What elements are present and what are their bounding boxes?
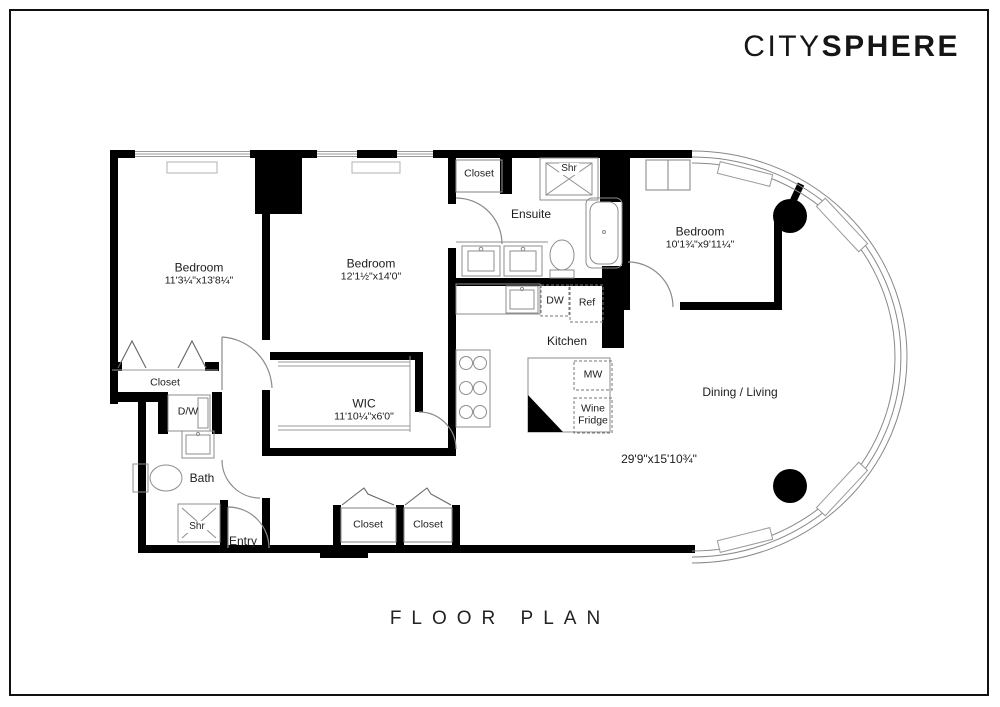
wine-fridge-label: Wine Fridge [573,403,613,427]
washer-dryer-label: D/W [178,406,198,419]
floor-plan-page: CITYSPHERE Bedroom 11'3¼"x13'8¼" Bedroom… [0,0,1000,707]
dishwasher-label: DW [546,295,564,308]
room-name: Bedroom [666,225,735,239]
room-name: Bedroom [165,261,234,275]
bedroom2-label: Bedroom 12'1½"x14'0" [341,257,402,284]
room-name: WIC [334,397,394,411]
shower-label: Shr [559,163,579,175]
plan-title: FLOOR PLAN [390,608,610,630]
range-icon [456,350,490,427]
closet-label: Closet [150,377,180,390]
brand-logo: CITYSPHERE [743,30,960,64]
bath-fixtures [133,395,220,542]
floor-plan-drawing [0,0,1000,707]
bathtub-icon [586,198,622,268]
bath-door-arc [222,460,260,498]
room-dims: 11'10¼"x6'0" [334,411,394,424]
bedroom3-door-arc [628,262,673,307]
bedroom1-label: Bedroom 11'3¼"x13'8¼" [165,261,234,288]
sink-icon [182,431,214,458]
kitchen-sink-icon [506,286,538,313]
entry-label: Entry [229,534,257,548]
sink-icon [504,246,542,276]
bifold-door-icon [342,488,394,505]
dining-living-dims: 29'9"x15'10¾" [621,452,697,466]
bifold-door-icon [405,488,451,505]
room-name: Bedroom [341,257,402,271]
wic-label: WIC 11'10¼"x6'0" [334,397,394,424]
room-dims: 11'3¼"x13'8¼" [165,275,234,288]
closet-label: Closet [353,519,383,532]
closet-label: Closet [413,519,443,532]
brand-light: CITY [743,30,821,63]
kitchen-label: Kitchen [547,334,587,348]
ensuite-label: Ensuite [511,207,551,221]
walls [110,150,782,558]
sink-icon [462,246,500,276]
toilet-icon [550,240,574,278]
door-swings [222,198,673,548]
room-dims: 10'1¾"x9'11¼" [666,239,735,252]
microwave-label: MW [584,369,603,382]
island-corner [528,395,563,432]
bifold-door-icon [178,341,206,368]
brand-bold: SPHERE [822,30,960,63]
ensuite-door-arc [456,198,502,244]
column-icon [773,469,807,503]
shower-label: Shr [187,521,207,533]
bath-label: Bath [190,471,215,485]
bifold-door-icon [118,341,146,368]
bedroom3-label: Bedroom 10'1¾"x9'11¼" [666,225,735,252]
bedroom1-door-arc [222,337,272,388]
refrigerator-label: Ref [579,297,595,310]
room-dims: 12'1½"x14'0" [341,271,402,284]
dining-living-label: Dining / Living [702,385,777,399]
closet-label: Closet [464,168,494,181]
